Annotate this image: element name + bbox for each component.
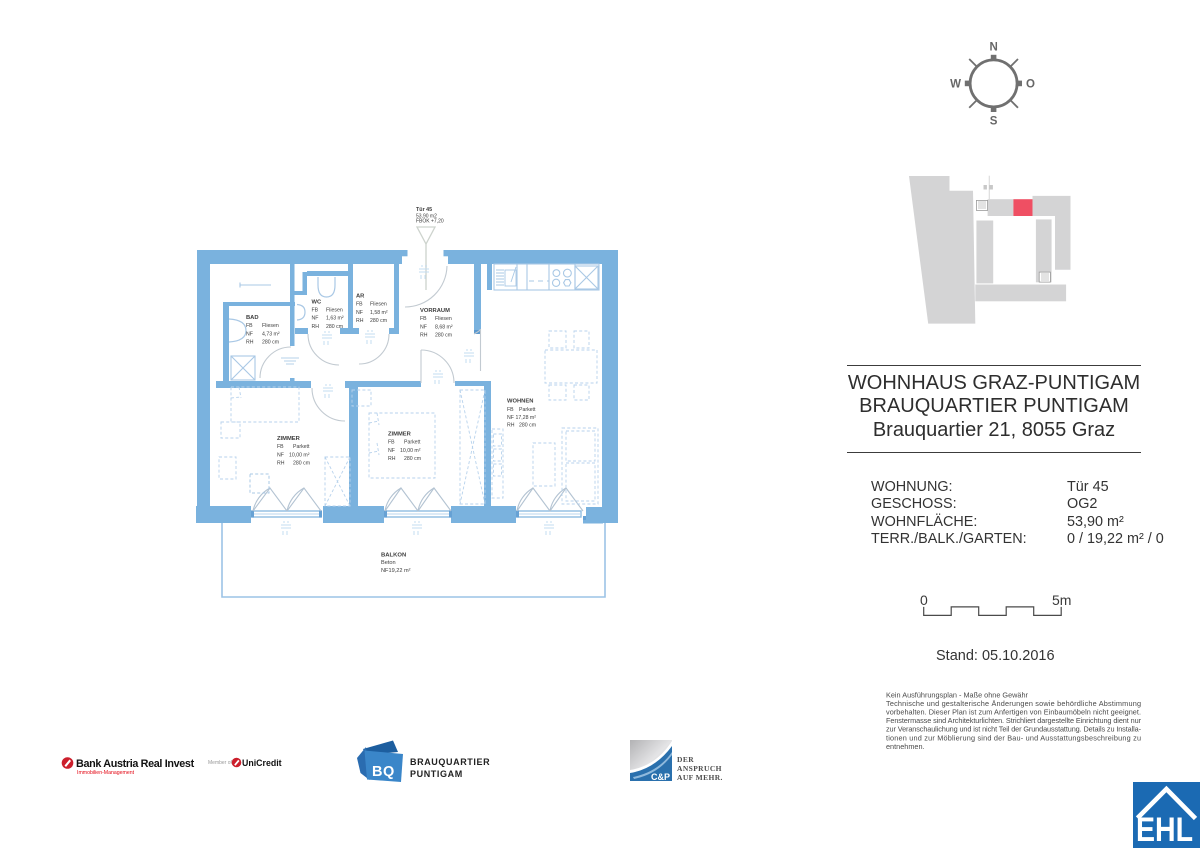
svg-text:RH: RH xyxy=(312,324,320,330)
svg-text:W: W xyxy=(950,79,961,91)
svg-text:NF: NF xyxy=(420,324,427,330)
svg-text:280 cm: 280 cm xyxy=(435,333,452,339)
svg-text:RH: RH xyxy=(388,456,396,462)
svg-text:Parkett: Parkett xyxy=(404,440,421,446)
svg-text:C&P: C&P xyxy=(651,772,670,782)
svg-text:FB: FB xyxy=(312,307,319,313)
svg-text:FB: FB xyxy=(388,440,395,446)
svg-text:RH: RH xyxy=(507,423,515,429)
svg-text:280 cm: 280 cm xyxy=(519,423,536,429)
svg-text:VORRAUM: VORRAUM xyxy=(420,308,450,314)
svg-text:0: 0 xyxy=(920,592,928,608)
svg-text:NF: NF xyxy=(388,448,395,454)
svg-text:entnehmen.: entnehmen. xyxy=(886,742,925,751)
svg-text:RH: RH xyxy=(277,461,285,467)
svg-text:17,28 m²: 17,28 m² xyxy=(516,415,537,421)
svg-text:NF: NF xyxy=(312,316,319,322)
svg-text:Fliesen: Fliesen xyxy=(326,307,343,313)
svg-text:WC: WC xyxy=(312,300,322,306)
svg-text:Parkett: Parkett xyxy=(519,407,536,413)
svg-text:Parkett: Parkett xyxy=(293,444,310,450)
svg-text:1,63 m²: 1,63 m² xyxy=(326,316,344,322)
svg-text:FB: FB xyxy=(356,302,363,308)
svg-text:Fliesen: Fliesen xyxy=(435,316,452,322)
svg-text:BQ: BQ xyxy=(372,764,395,780)
svg-text:10,00 m²: 10,00 m² xyxy=(400,448,421,454)
svg-text:O: O xyxy=(1026,79,1035,91)
svg-text:S: S xyxy=(990,116,998,128)
svg-text:RH: RH xyxy=(356,318,364,324)
svg-text:280 cm: 280 cm xyxy=(370,318,387,324)
svg-text:NF: NF xyxy=(507,415,514,421)
svg-text:NF: NF xyxy=(277,452,284,458)
svg-text:NF: NF xyxy=(356,310,363,316)
svg-text:N: N xyxy=(989,42,997,54)
svg-text:FB: FB xyxy=(507,407,514,413)
svg-text:ZIMMER: ZIMMER xyxy=(277,436,301,442)
svg-text:Beton: Beton xyxy=(381,560,396,566)
svg-text:BAD: BAD xyxy=(246,315,259,321)
svg-text:NF19,22 m²: NF19,22 m² xyxy=(381,568,411,574)
svg-text:4,73 m²: 4,73 m² xyxy=(262,331,280,337)
svg-text:5m: 5m xyxy=(1052,592,1071,608)
svg-text:Fliesen: Fliesen xyxy=(370,302,387,308)
svg-text:1,58 m²: 1,58 m² xyxy=(370,310,388,316)
svg-text:Fliesen: Fliesen xyxy=(262,323,279,329)
svg-text:280 cm: 280 cm xyxy=(293,461,310,467)
svg-text:280 cm: 280 cm xyxy=(404,456,421,462)
svg-text:AR: AR xyxy=(356,294,365,300)
svg-text:10,00 m²: 10,00 m² xyxy=(289,452,310,458)
svg-text:ZIMMER: ZIMMER xyxy=(388,432,412,438)
svg-text:280 cm: 280 cm xyxy=(326,324,343,330)
svg-text:FB: FB xyxy=(277,444,284,450)
svg-text:RH: RH xyxy=(420,333,428,339)
svg-text:Tür 45: Tür 45 xyxy=(416,207,432,213)
svg-text:NF: NF xyxy=(246,331,253,337)
svg-text:FB: FB xyxy=(246,323,253,329)
svg-text:BALKON: BALKON xyxy=(381,553,406,559)
svg-text:EHL: EHL xyxy=(1136,811,1193,848)
svg-text:FBOK +7,20: FBOK +7,20 xyxy=(416,219,444,225)
svg-text:WOHNEN: WOHNEN xyxy=(507,399,533,405)
svg-text:RH: RH xyxy=(246,340,254,346)
svg-text:8,68 m²: 8,68 m² xyxy=(435,324,453,330)
svg-text:FB: FB xyxy=(420,316,427,322)
svg-text:280 cm: 280 cm xyxy=(262,340,279,346)
